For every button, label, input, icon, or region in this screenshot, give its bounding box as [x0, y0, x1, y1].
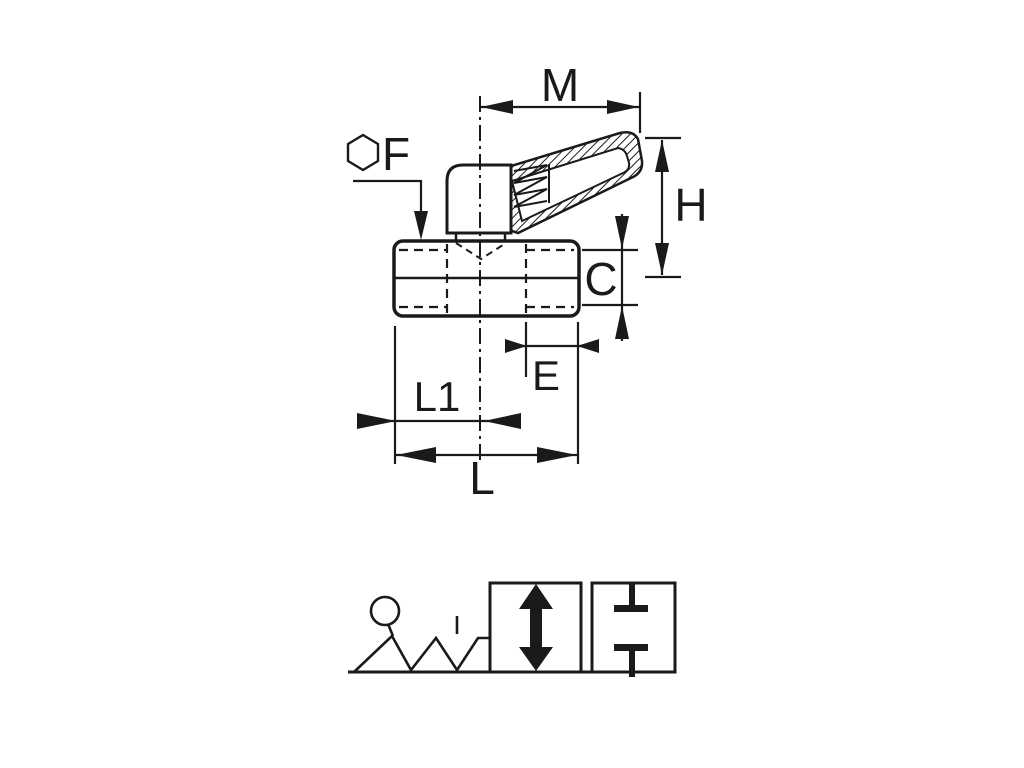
valve-schematic-symbol [348, 583, 675, 677]
valve-handle [447, 132, 642, 240]
lever-knob [371, 597, 399, 625]
position-box-open [490, 583, 581, 672]
dim-M-arrow-left [481, 100, 513, 114]
flow-double-arrow [519, 584, 553, 671]
callout-F-arrow [414, 211, 428, 240]
dim-C-arrow-bottom [615, 306, 629, 339]
position-box-closed [592, 583, 675, 677]
dim-E-arrow-right [577, 339, 599, 353]
callout-F-label: F [382, 128, 410, 180]
dimension-M: M [481, 59, 640, 133]
dim-H-arrow-bottom [655, 243, 669, 275]
dim-C-label: C [584, 253, 617, 305]
valve-body [394, 241, 579, 316]
dim-L1-arrow-left [357, 413, 396, 429]
dimension-H: H [645, 138, 708, 277]
lever-detent-actuator [354, 597, 491, 672]
dim-C-arrow-top [615, 216, 629, 249]
drawing-canvas: M F H C E L1 [0, 0, 1024, 768]
dim-L-arrow-right [537, 447, 577, 463]
dim-E-arrow-left [505, 339, 527, 353]
ball-valve-technical-drawing: M F H C E L1 [0, 0, 1024, 768]
dim-H-label: H [674, 179, 707, 231]
blocked-port-bottom-bar [614, 644, 648, 651]
dim-H-arrow-top [655, 140, 669, 172]
dimension-C: C [582, 214, 638, 341]
dim-L-label: L [469, 452, 495, 504]
dimension-L1: L1 [357, 373, 521, 429]
fulcrum-and-detent-notches [354, 636, 491, 672]
callout-F-leader [353, 181, 421, 212]
dim-L1-label: L1 [414, 373, 461, 420]
blocked-port-top-bar [614, 605, 648, 612]
blocked-port-top-stem [629, 583, 635, 607]
dim-E-label: E [532, 352, 560, 399]
hex-across-flats-icon [348, 135, 378, 170]
dim-L1-arrow-right [484, 413, 521, 429]
dim-M-arrow-right [607, 100, 639, 114]
blocked-port-bottom-stem [629, 651, 635, 677]
callout-F: F [348, 128, 428, 240]
dim-M-label: M [541, 59, 579, 111]
dimension-E: E [505, 322, 599, 399]
dim-L-arrow-left [396, 447, 436, 463]
